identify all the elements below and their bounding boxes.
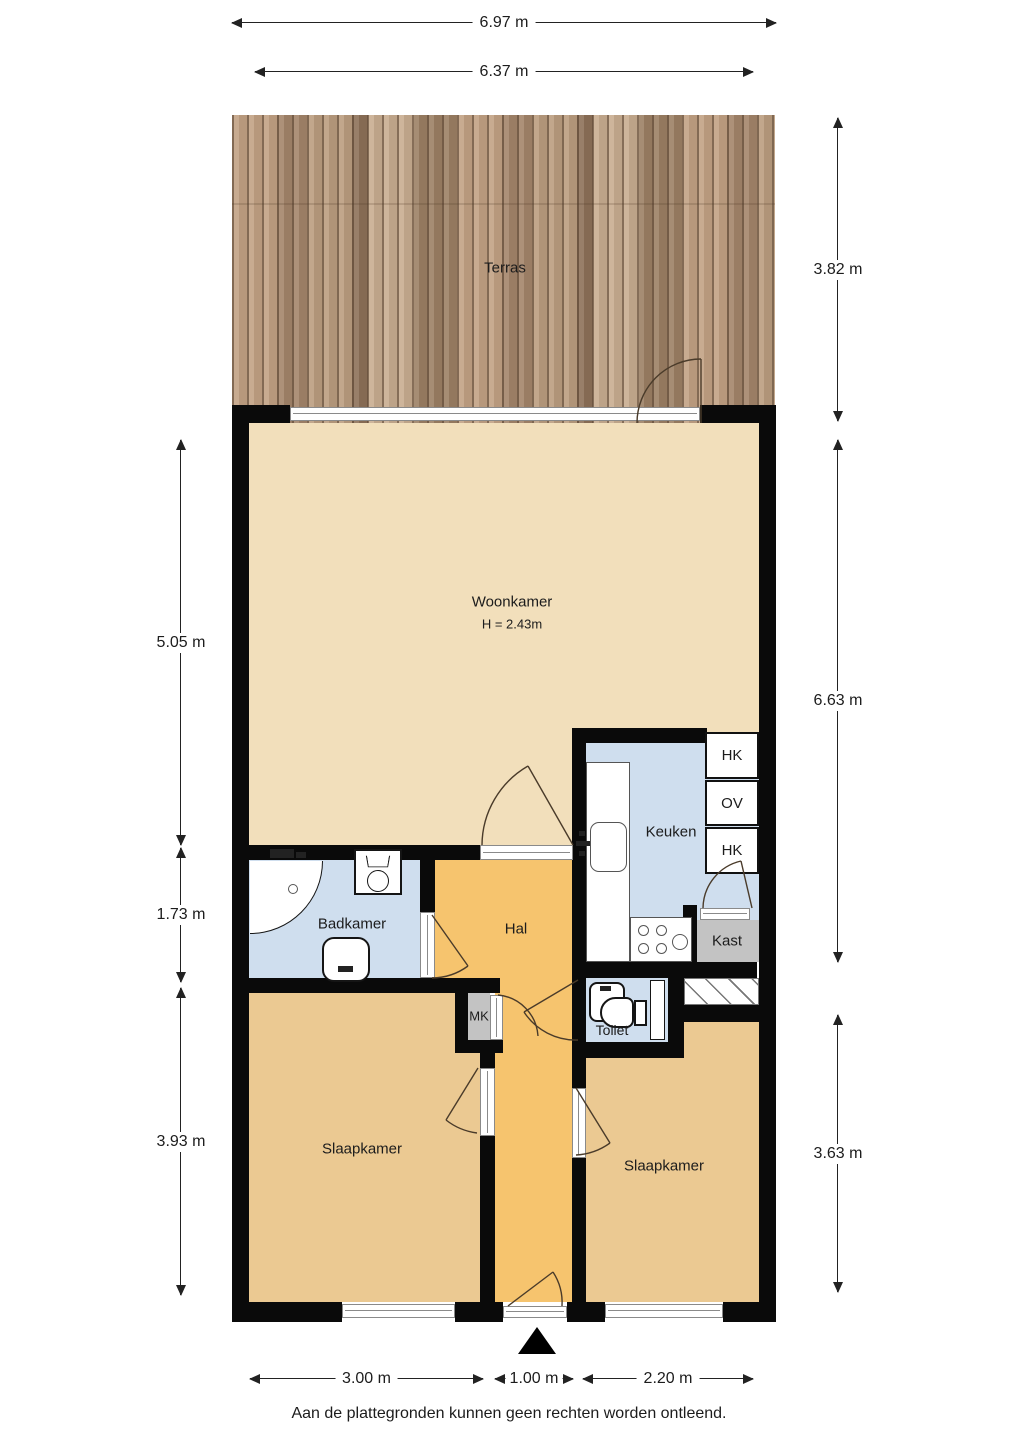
wall [232,1302,342,1322]
shower-drain-icon [288,884,298,894]
bedroom-right-upper-notch [684,1022,759,1058]
bedroom-right [586,1058,759,1302]
shaft-hatch [684,978,759,1005]
bathroom-label: Badkamer [318,916,386,933]
ceiling-height-label: H = 2.43m [482,617,542,632]
dim-top-outer: 6.97 m [232,15,776,31]
kitchen-faucet-icon [576,841,590,846]
burner-icon [656,943,667,954]
kitchen-label: Keuken [646,824,697,841]
dim-living-left: 5.05 m [173,440,189,845]
dim-terrace-right: 3.82 m [830,118,846,421]
kast-label: Kast [712,933,742,950]
dim-bath-left: 1.73 m [173,848,189,982]
kitchen-sink [590,822,627,872]
mk-label: MK [469,1009,489,1024]
cabinet-label: HK [722,842,743,859]
bathroom-sink-faucet-icon [338,966,353,972]
kast-door-band [700,908,750,920]
wall [759,423,776,1322]
cooktop [630,917,692,962]
living-hall-door-band [480,845,573,860]
cabinet-hk-bottom: HK [705,827,759,874]
cabinet-ov: OV [705,780,759,826]
wall [723,1302,776,1322]
bedroom-left-label: Slaapkamer [322,1141,402,1158]
footer-disclaimer: Aan de plattegronden kunnen geen rechten… [0,1405,1018,1423]
floor-plan: HK OV HK [0,0,1018,1440]
burner-icon [638,943,649,954]
bedroom-right-window [605,1304,723,1318]
bathroom-door-band [420,912,435,978]
washing-machine [354,849,402,895]
burner-icon [672,934,688,950]
mk-door-band [490,995,503,1040]
toilet-tank [634,1000,647,1026]
washer-basin-icon [366,856,390,868]
dim-bottom-right: 2.20 m [583,1371,753,1387]
hall-corridor [495,978,572,1302]
cabinet-label: HK [722,747,743,764]
wall [700,405,776,423]
kitchen-faucet-knob-icon [579,831,585,836]
shower-faucet-icon [270,849,294,858]
dim-bottom-center: 1.00 m [495,1371,573,1387]
entrance-door-band [503,1306,567,1318]
wall [455,1040,503,1053]
dim-bottom-left: 3.00 m [250,1371,483,1387]
entrance-marker-icon [518,1327,556,1354]
shower-head-icon [296,852,306,858]
washer-drum-icon [367,870,389,892]
wall [572,962,757,978]
wall [567,1302,605,1322]
living-room-label: Woonkamer [472,594,553,611]
dim-main-right: 6.63 m [830,440,846,962]
terrace-window-band [290,407,700,421]
burner-icon [638,925,649,936]
bedroom-right-door-band [572,1088,586,1158]
hall-upper [435,860,572,978]
terrace-label: Terras [484,260,526,277]
cabinet-hk-top: HK [705,732,759,779]
wall [586,728,707,743]
dim-top-inner: 6.37 m [255,64,753,80]
dim-bedroom-right: 3.63 m [830,1015,846,1292]
wall [455,1302,503,1322]
wall [684,1005,759,1022]
burner-icon [656,925,667,936]
wall [572,1042,684,1058]
dim-bedroom-left: 3.93 m [173,988,189,1295]
hall-label: Hal [505,921,528,938]
wall [420,845,435,912]
wall [232,405,249,1322]
toilet-basin-faucet-icon [600,986,611,991]
toilet-door-leaf [650,980,665,1040]
bedroom-left-door-band [480,1068,495,1136]
cabinet-label: OV [721,795,743,812]
bathroom-sink [322,937,370,982]
toilet-label: Toilet [596,1022,629,1038]
bedroom-left-window [342,1304,455,1318]
bedroom-right-label: Slaapkamer [624,1158,704,1175]
kitchen-faucet-knob-icon [579,851,585,856]
